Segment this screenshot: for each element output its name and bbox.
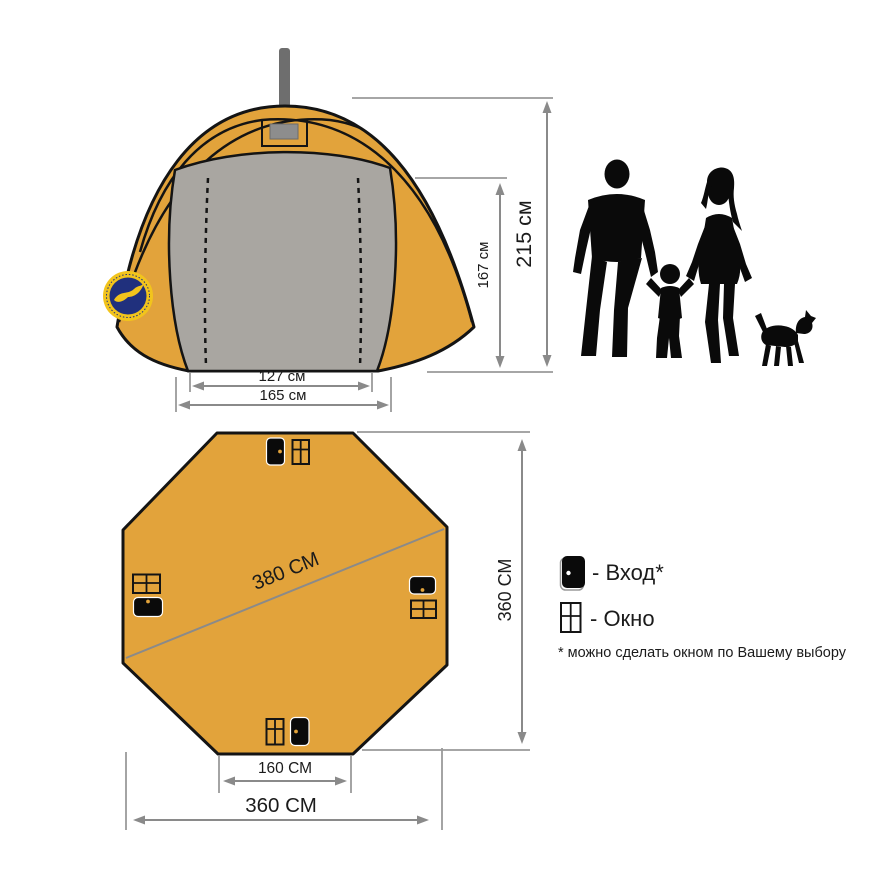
tent-plan-view: 380 СМ: [123, 433, 447, 754]
legend: - Вход* - Окно * можно сделать окном по …: [558, 556, 847, 661]
man-torso: [588, 194, 645, 262]
legend-window-label: - Окно: [590, 606, 655, 631]
woman-silhouette: [686, 168, 752, 363]
dog-leg: [794, 341, 804, 363]
arrowhead: [133, 816, 145, 825]
family-silhouette: [573, 160, 816, 367]
arrowhead: [335, 777, 347, 786]
man-leg-right: [612, 258, 642, 357]
arrowhead: [358, 382, 370, 391]
woman-leg-right: [723, 284, 739, 356]
diagram-canvas: 127 см 165 см 167 см 215 см: [0, 0, 875, 875]
door-leaf: [291, 718, 310, 746]
child-arm-left: [646, 278, 662, 297]
brand-badge-icon: [103, 271, 153, 321]
dim-door-height-label: 167 см: [475, 241, 492, 288]
man-silhouette: [573, 160, 658, 358]
door-icon: [410, 577, 436, 595]
arrowhead: [496, 356, 505, 368]
dog-silhouette: [755, 310, 816, 366]
dog-leg: [786, 346, 793, 366]
dog-leg: [762, 344, 771, 366]
child-torso: [658, 286, 682, 321]
dog-head: [796, 310, 816, 334]
arrowhead: [518, 732, 527, 744]
arrowhead: [178, 401, 190, 410]
dim-bottom-edge-label: 160 СМ: [258, 760, 312, 777]
door-handle: [294, 730, 298, 734]
woman-leg-left: [705, 284, 721, 363]
door-handle: [278, 450, 282, 454]
legend-window-item: - Окно: [561, 603, 655, 632]
legend-footnote: * можно сделать окном по Вашему выбору: [558, 645, 847, 661]
dim-total-width-label: 360 СМ: [245, 794, 317, 817]
child-silhouette: [646, 264, 694, 358]
door-icon: [291, 718, 310, 746]
arrowhead: [417, 816, 429, 825]
tent-spec-diagram: 127 см 165 см 167 см 215 см: [0, 0, 875, 875]
door-icon: [562, 556, 585, 588]
dim-total-height-label: 215 см: [512, 200, 536, 267]
dog-leg: [774, 346, 781, 366]
dim-inner-width-label: 127 см: [258, 368, 305, 385]
door-handle: [566, 571, 570, 575]
man-head: [605, 160, 630, 189]
door-handle: [421, 588, 425, 592]
arrowhead: [377, 401, 389, 410]
dim-side-height-label: 360 СМ: [495, 559, 515, 622]
arrowhead: [543, 355, 552, 367]
child-arm-right: [678, 278, 694, 297]
door-icon: [267, 438, 285, 465]
arrowhead: [518, 439, 527, 451]
child-head: [660, 264, 680, 284]
man-arm-left: [573, 203, 592, 274]
arrowhead: [223, 777, 235, 786]
door-handle: [146, 600, 150, 604]
arrowhead: [192, 382, 204, 391]
legend-entrance-item: - Вход*: [561, 556, 665, 590]
arrowhead: [543, 101, 552, 113]
dim-outer-width-label: 165 см: [259, 387, 306, 404]
door-icon: [134, 598, 163, 617]
tent-front-view: [103, 48, 474, 371]
child-legs: [656, 316, 682, 358]
chimney-base: [270, 124, 298, 139]
dog-tail: [755, 313, 767, 332]
arrowhead: [496, 183, 505, 195]
legend-entrance-label: - Вход*: [592, 560, 664, 585]
man-leg-left: [581, 256, 607, 356]
